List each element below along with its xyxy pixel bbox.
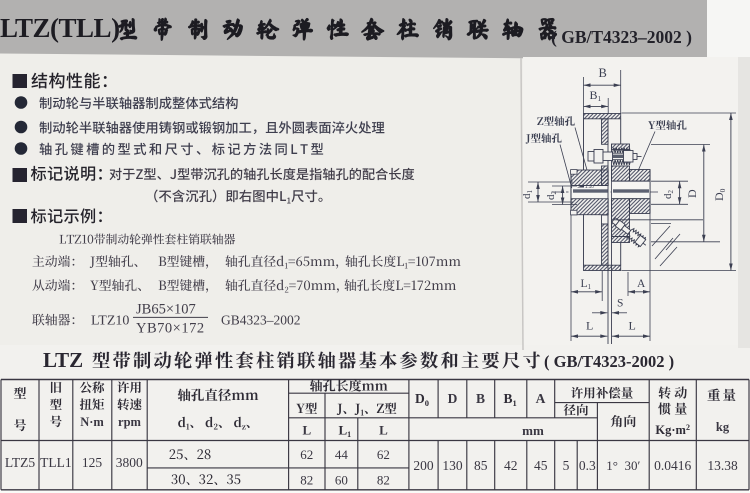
svg-text:A: A (637, 278, 646, 290)
svg-text:125: 125 (82, 455, 103, 470)
svg-text:130: 130 (442, 458, 463, 473)
svg-text:S: S (617, 298, 623, 310)
svg-text:82: 82 (300, 473, 313, 488)
svg-text:13.38: 13.38 (707, 458, 738, 473)
svg-text:LTZ: LTZ (43, 348, 83, 372)
svg-text:3800: 3800 (116, 455, 143, 470)
svg-text:JB65×107: JB65×107 (136, 302, 196, 318)
svg-text:D: D (685, 189, 699, 198)
svg-text:( GB/T4323-2002 ): ( GB/T4323-2002 ) (544, 352, 674, 371)
svg-text:L: L (629, 319, 636, 333)
svg-text:5: 5 (563, 458, 570, 473)
svg-text:0.3: 0.3 (579, 458, 596, 473)
svg-text:rpm: rpm (118, 415, 142, 429)
svg-text:62: 62 (377, 447, 390, 462)
svg-text:200: 200 (413, 458, 434, 473)
svg-text:Kg·m2: Kg·m2 (655, 423, 690, 437)
svg-text:60: 60 (335, 473, 348, 488)
svg-text:42: 42 (504, 458, 518, 473)
svg-text:62: 62 (300, 447, 313, 462)
svg-text:YB70×172: YB70×172 (136, 321, 205, 337)
svg-text:0.0416: 0.0416 (654, 458, 691, 473)
svg-text:mm: mm (522, 423, 544, 438)
svg-text:1:10: 1:10 (585, 184, 594, 189)
svg-text:D: D (448, 391, 458, 406)
svg-text:TLL1: TLL1 (40, 455, 72, 470)
svg-text:( GB/T4323–2002 ): ( GB/T4323–2002 ) (551, 27, 692, 47)
svg-text:GB4323–2002: GB4323–2002 (221, 313, 301, 328)
svg-text:85: 85 (474, 458, 488, 473)
svg-text:d1: d1 (521, 190, 534, 200)
svg-text:A: A (536, 391, 546, 406)
svg-text:B: B (476, 391, 485, 406)
svg-text:LTZ5: LTZ5 (5, 455, 35, 470)
svg-text:44: 44 (335, 447, 349, 462)
svg-text:82: 82 (377, 473, 390, 488)
svg-text:B: B (599, 66, 607, 80)
svg-text:LTZ(TLL): LTZ(TLL) (0, 13, 120, 43)
svg-text:L: L (302, 423, 311, 438)
svg-text:LTZ10: LTZ10 (91, 314, 129, 329)
svg-text:1° 30′: 1° 30′ (606, 458, 640, 473)
svg-text:L: L (379, 423, 388, 438)
svg-text:L: L (586, 319, 593, 333)
svg-text:45: 45 (534, 458, 548, 473)
svg-text:N·m: N·m (80, 415, 104, 429)
svg-text:kg: kg (716, 420, 730, 434)
